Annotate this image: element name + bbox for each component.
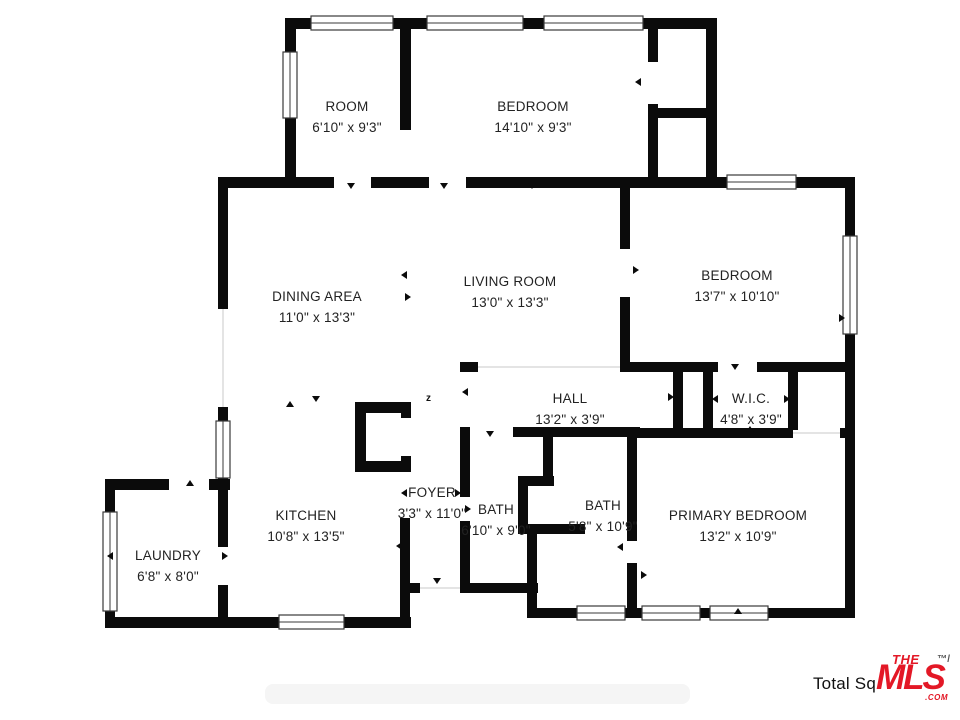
z-marker: z [426, 393, 431, 404]
room-dims: 13'0" x 13'3" [471, 293, 548, 314]
room-dims: 6'10" x 9'3" [312, 118, 382, 139]
room-name: BATH [478, 500, 514, 521]
room-label-primary-bedroom: PRIMARY BEDROOM 13'2" x 10'9" [669, 506, 807, 548]
watermark-smudge [265, 684, 690, 704]
themls-logo: THE MLS ™/ .COM [876, 652, 944, 702]
room-dims: 13'2" x 3'9" [535, 410, 605, 431]
room-dims: 11'0" x 13'3" [279, 308, 355, 329]
room-label-bath-2: BATH 5'8" x 10'9" [568, 496, 638, 538]
room-dims: 6'10" x 9'0" [461, 521, 531, 542]
room-name: PRIMARY BEDROOM [669, 506, 807, 527]
room-dims: 5'8" x 10'9" [568, 517, 638, 538]
room-dims: 13'7" x 10'10" [694, 287, 779, 308]
room-label-living-room: LIVING ROOM 13'0" x 13'3" [464, 272, 557, 314]
room-name: HALL [553, 389, 588, 410]
room-name: BEDROOM [701, 266, 773, 287]
room-label-wic: W.I.C. 4'8" x 3'9" [720, 389, 782, 431]
room-name: LAUNDRY [135, 546, 201, 567]
room-name: ROOM [326, 97, 369, 118]
room-label-bath-1: BATH 6'10" x 9'0" [461, 500, 531, 542]
room-dims: 13'2" x 10'9" [699, 527, 776, 548]
room-dims: 14'10" x 9'3" [494, 118, 571, 139]
room-dims: 4'8" x 3'9" [720, 410, 782, 431]
room-label-room: ROOM 6'10" x 9'3" [312, 97, 382, 139]
room-label-kitchen: KITCHEN 10'8" x 13'5" [267, 506, 344, 548]
room-label-foyer: FOYER 3'3" x 11'0" [398, 483, 467, 525]
total-sq-label: Total Sq [813, 674, 876, 694]
room-name: KITCHEN [275, 506, 336, 527]
room-label-laundry: LAUNDRY 6'8" x 8'0" [135, 546, 201, 588]
room-label-dining-area: DINING AREA 11'0" x 13'3" [272, 287, 362, 329]
room-name: BEDROOM [497, 97, 569, 118]
logo-mls-text: MLS [876, 660, 944, 695]
room-dims: 10'8" x 13'5" [267, 527, 344, 548]
room-name: W.I.C. [732, 389, 770, 410]
room-name: DINING AREA [272, 287, 362, 308]
logo-com-text: .COM [925, 693, 948, 702]
logo-trademark: ™/ [937, 654, 950, 665]
floorplan-drawing [0, 0, 960, 720]
room-name: BATH [585, 496, 621, 517]
room-dims: 6'8" x 8'0" [137, 567, 199, 588]
floorplan-page: ROOM 6'10" x 9'3" BEDROOM 14'10" x 9'3" … [0, 0, 960, 720]
room-label-bedroom-top: BEDROOM 14'10" x 9'3" [494, 97, 571, 139]
room-name: FOYER [408, 483, 456, 504]
room-label-hall: HALL 13'2" x 3'9" [535, 389, 605, 431]
room-name: LIVING ROOM [464, 272, 557, 293]
room-dims: 3'3" x 11'0" [398, 504, 467, 525]
room-label-bedroom-right: BEDROOM 13'7" x 10'10" [694, 266, 779, 308]
